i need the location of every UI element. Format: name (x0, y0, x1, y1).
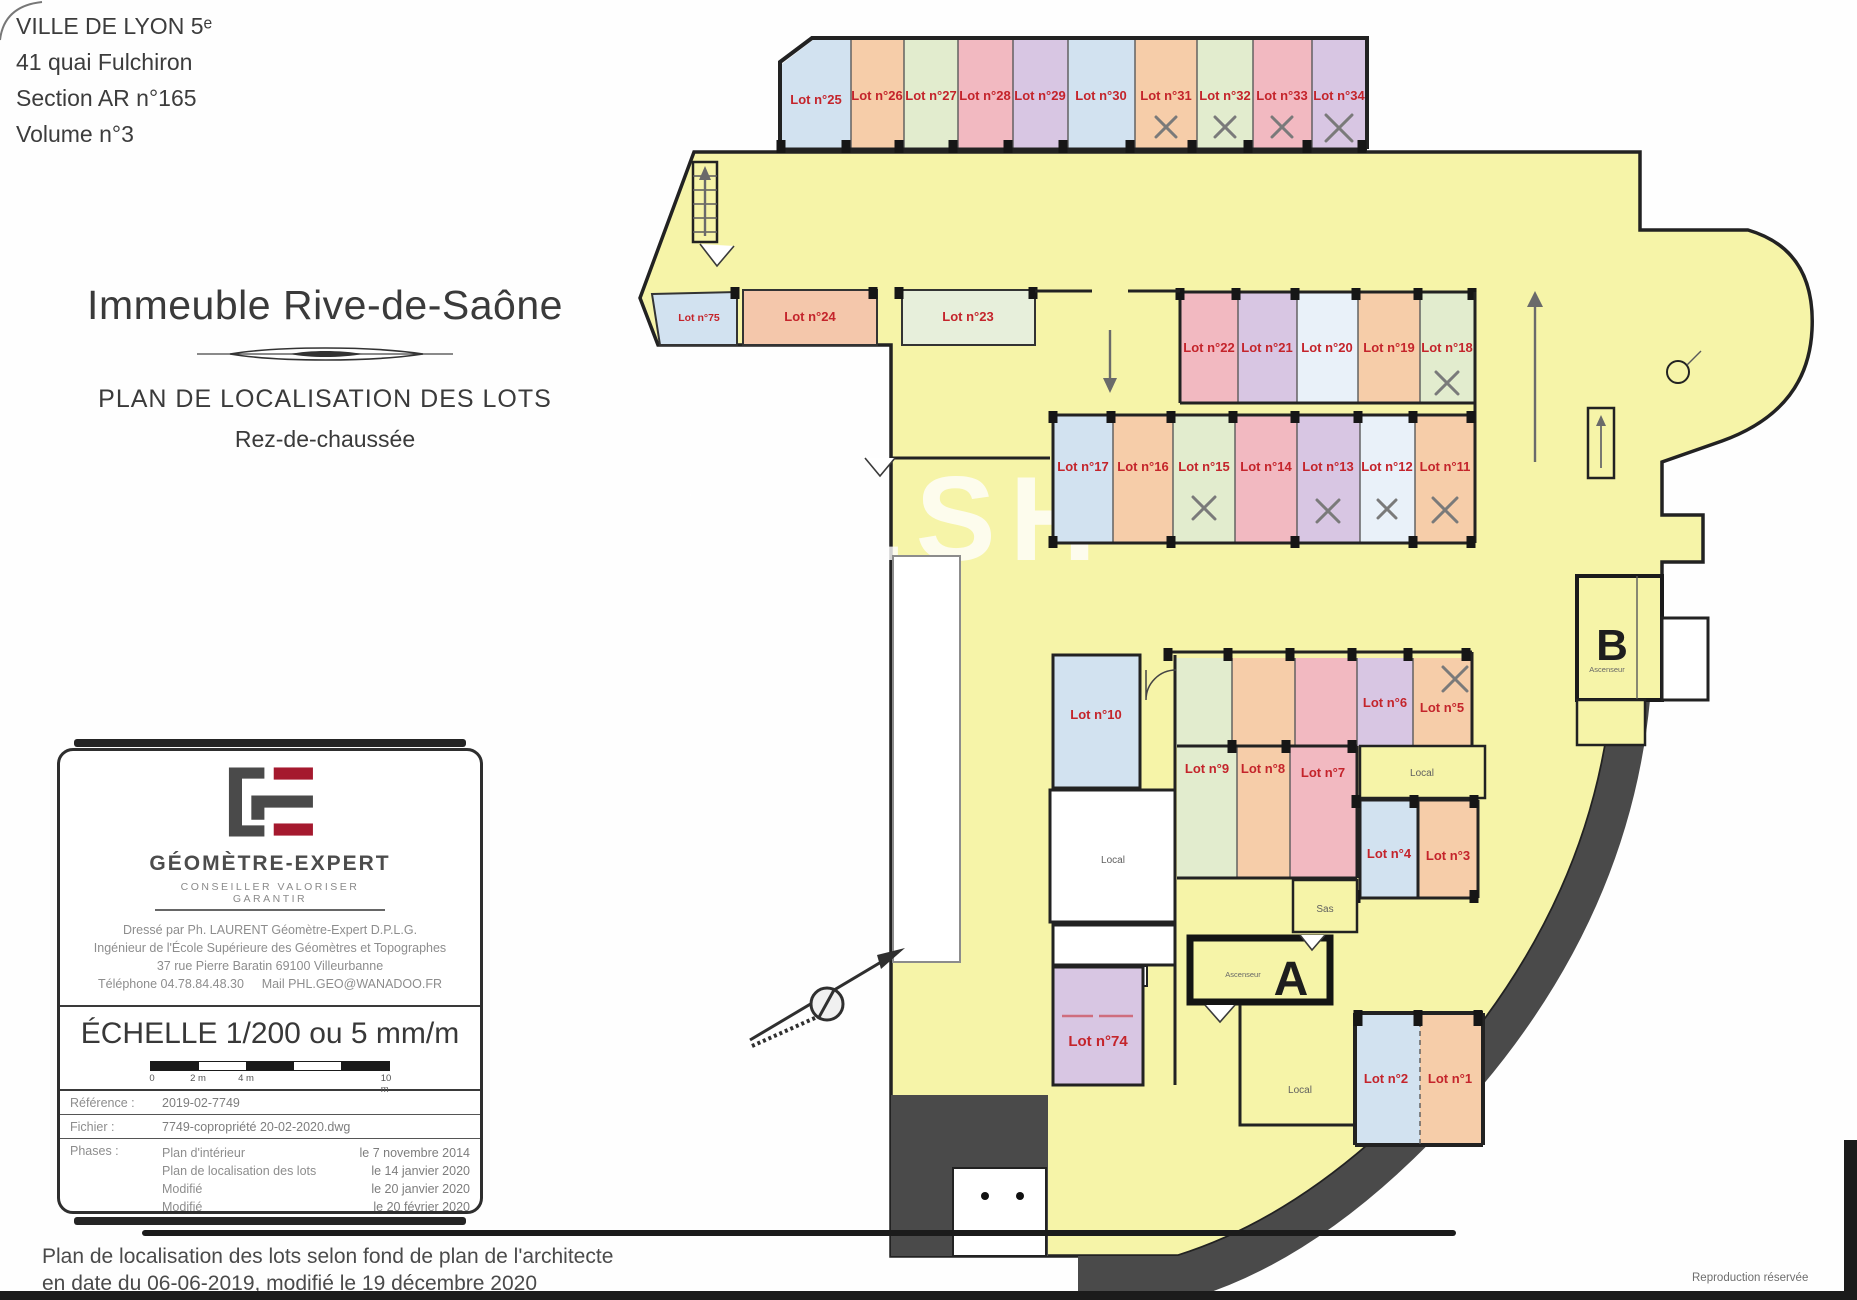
column-dot (981, 1192, 989, 1200)
scale-tick: 4 m (238, 1073, 254, 1084)
heavy-rule (142, 1230, 1456, 1236)
reference-value: 2019-02-7749 (162, 1096, 240, 1110)
drawn-by: Dressé par Ph. LAURENT Géomètre-Expert D… (60, 921, 480, 939)
lot-label: Lot n°11 (1420, 459, 1471, 474)
phase-item: Modifié le 20 janvier 2020 (162, 1180, 470, 1198)
footer-caption: Plan de localisation des lots selon fond… (42, 1243, 613, 1297)
page-bottom-edge (0, 1291, 1857, 1300)
lot-label: Lot n°9 (1185, 761, 1229, 776)
phases-label: Phases : (70, 1144, 162, 1216)
scale-section: ÉCHELLE 1/200 ou 5 mm/m 0 2 m 4 m 10 m (60, 1005, 480, 1087)
reference-row: Référence : 2019-02-7749 (60, 1091, 480, 1115)
room-label: Ascenseur (1225, 970, 1261, 979)
room-label: Sas (1316, 904, 1333, 915)
engineer-line: Ingénieur de l'École Supérieure des Géom… (60, 939, 480, 957)
rights-notice: Reproduction réservée (1692, 1272, 1808, 1284)
lot-label: Lot n°7 (1301, 765, 1345, 780)
entrance-a-letter: A (1274, 953, 1309, 1006)
scale-tick: 0 (149, 1073, 154, 1084)
scale-tick: 2 m (190, 1073, 206, 1084)
file-label: Fichier : (70, 1120, 162, 1134)
page-corner-arc (0, 0, 50, 50)
lot-label: Lot n°22 (1183, 340, 1234, 355)
scale-tick: 10 m (381, 1073, 392, 1095)
lot-label: Lot n°74 (1068, 1033, 1128, 1050)
lot-label: Lot n°26 (851, 88, 902, 103)
phase-item: Plan d'intérieur le 7 novembre 2014 (162, 1144, 470, 1162)
stall-row-22-18: Lot n°22 Lot n°21 Lot n°20 Lot n°19 Lot … (1180, 288, 1475, 403)
room-label: Local (1410, 768, 1434, 779)
lot-label: Lot n°5 (1420, 700, 1464, 715)
phase-item: Plan de localisation des lots le 14 janv… (162, 1162, 470, 1180)
elevator-a: Ascenseur A (1190, 938, 1330, 1006)
lot-label: Lot n°13 (1302, 459, 1353, 474)
stall-row-17-11: Lot n°17 Lot n°16 Lot n°15 Lot n°14 Lot … (1053, 403, 1475, 548)
lot-label: Lot n°34 (1313, 88, 1365, 103)
scale-bar: 0 2 m 4 m 10 m (150, 1061, 390, 1087)
elevator-b: B Ascenseur (1577, 576, 1708, 745)
logo-tagline: CONSEILLER VALORISER GARANTIR (155, 881, 385, 911)
scale-title: ÉCHELLE 1/200 ou 5 mm/m (60, 1017, 480, 1051)
reference-label: Référence : (70, 1096, 162, 1110)
lot-label: Lot n°17 (1057, 459, 1108, 474)
logo-title: GÉOMÈTRE-EXPERT (60, 852, 480, 876)
lot-label: Lot n°24 (784, 309, 836, 324)
room-label: Ascenseur (1589, 665, 1625, 674)
watermark: MALSH (614, 452, 1111, 586)
lot-label: Lot n°16 (1117, 459, 1168, 474)
street-line: 37 rue Pierre Baratin 69100 Villeurbanne (60, 957, 480, 975)
lot-74-room (1053, 967, 1143, 1085)
lot-label: Lot n°20 (1301, 340, 1352, 355)
lot-label: Lot n°31 (1140, 88, 1191, 103)
lot-label: Lot n°29 (1014, 88, 1065, 103)
lot-label: Lot n°25 (790, 92, 841, 107)
north-arrow (750, 948, 905, 1046)
lot-label: Lot n°10 (1070, 707, 1121, 722)
drawing-meta: Référence : 2019-02-7749 Fichier : 7749-… (60, 1089, 480, 1220)
stall-row-2-1: Lot n°2 Lot n°1 (1355, 1010, 1483, 1145)
lot-label: Lot n°75 (678, 312, 720, 324)
ge-monogram-icon (214, 763, 326, 841)
cartouche: GÉOMÈTRE-EXPERT CONSEILLER VALORISER GAR… (57, 748, 483, 1214)
phone: Téléphone 04.78.84.48.30 (98, 975, 244, 993)
lot-label: Lot n°30 (1075, 88, 1126, 103)
lot-label: Lot n°33 (1256, 88, 1307, 103)
phases-row: Phases : Plan d'intérieur le 7 novembre … (60, 1139, 480, 1220)
page-right-edge (1844, 1140, 1857, 1300)
phase-item: Modifié le 20 février 2020 (162, 1198, 470, 1216)
scanned-plan-page: VILLE DE LYON 5ᵉ 41 quai Fulchiron Secti… (0, 0, 1857, 1300)
stall-row-top: Lot n°25 Lot n°26 Lot n°27 Lot n°28 Lot … (780, 38, 1367, 153)
lot-label: Lot n°14 (1240, 459, 1292, 474)
lot-label: Lot n°15 (1178, 459, 1229, 474)
column-dot (1016, 1192, 1024, 1200)
lot-label: Lot n°27 (905, 88, 956, 103)
surveyor-address: Dressé par Ph. LAURENT Géomètre-Expert D… (60, 921, 480, 993)
lot-label: Lot n°4 (1367, 846, 1412, 861)
lot-label: Lot n°2 (1364, 1071, 1408, 1086)
lot-label: Lot n°18 (1421, 340, 1472, 355)
lot-label: Lot n°3 (1426, 848, 1470, 863)
lot-label: Lot n°28 (959, 88, 1010, 103)
lot-label: Lot n°12 (1361, 459, 1412, 474)
lot-label: Lot n°19 (1363, 340, 1414, 355)
stall-row-75-24-23: Lot n°75 Lot n°24 Lot n°23 (652, 287, 1035, 345)
entrance-b-letter: B (1596, 621, 1628, 670)
mail: Mail PHL.GEO@WANADOO.FR (262, 975, 442, 993)
lot-label: Lot n°6 (1363, 695, 1407, 710)
surveyor-logo (60, 763, 480, 846)
file-value: 7749-copropriété 20-02-2020.dwg (162, 1120, 350, 1134)
lot-label: Lot n°23 (942, 309, 993, 324)
lot-label: Lot n°1 (1428, 1071, 1472, 1086)
file-row: Fichier : 7749-copropriété 20-02-2020.dw… (60, 1115, 480, 1139)
room-label: Local (1288, 1085, 1312, 1096)
room-label: Local (1101, 855, 1125, 866)
lot-label: Lot n°32 (1199, 88, 1250, 103)
lot-label: Lot n°21 (1241, 340, 1292, 355)
lot-label: Lot n°8 (1241, 761, 1285, 776)
